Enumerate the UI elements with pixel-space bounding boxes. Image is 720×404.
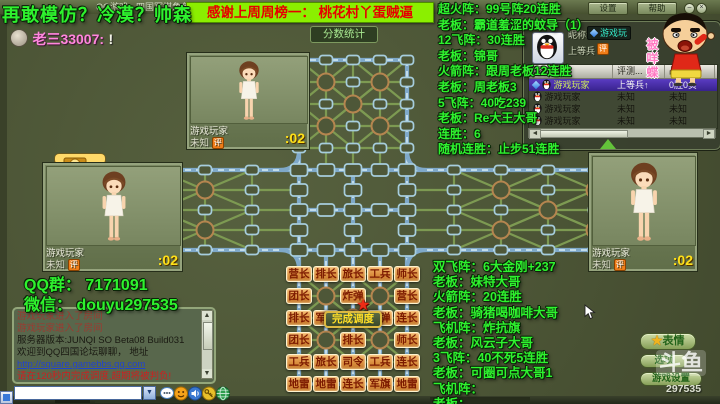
piece-tile[interactable]: 连长: [394, 354, 420, 370]
star-marker: ★: [356, 295, 370, 315]
board-node[interactable]: [372, 244, 389, 256]
board-node[interactable]: [318, 164, 335, 176]
piece-tile[interactable]: 团长: [286, 332, 312, 348]
rate-badge[interactable]: 评: [597, 43, 609, 55]
camp-circle: [372, 118, 389, 135]
camp-circle: [372, 332, 389, 349]
chat-text: !: [109, 31, 114, 47]
board-node[interactable]: [291, 244, 308, 256]
chat-author: 老三33007:: [32, 31, 104, 47]
promo-line: 老板：妹特大哥: [433, 275, 558, 290]
board-node[interactable]: [401, 78, 414, 87]
promo-line: 老板：: [433, 397, 558, 404]
board-node[interactable]: [347, 56, 360, 65]
promo-line: 老板：骑猪喝咖啡大哥: [433, 306, 558, 321]
piece-tile[interactable]: 工兵: [286, 354, 312, 370]
promo-line: 3飞阵：40不死5连胜: [433, 351, 558, 366]
board-node[interactable]: [320, 56, 333, 65]
player-rank: 未知: [592, 260, 611, 271]
camp-circle: [318, 118, 335, 135]
board-node[interactable]: [199, 246, 212, 255]
mouse-cursor: [584, 304, 596, 320]
camp-circle: [372, 74, 389, 91]
board-node[interactable]: [246, 186, 259, 195]
board-node[interactable]: [291, 184, 308, 196]
board-node[interactable]: [374, 56, 387, 65]
collapse-arrow[interactable]: [600, 139, 616, 149]
chat-message-row: 服务器版本:JUNQI SO Beta08 Build031: [17, 335, 199, 347]
board-node[interactable]: [291, 164, 308, 176]
wechat-text: 微信： douyu297535: [24, 291, 178, 315]
scroll-up-arrow[interactable]: ▲: [202, 311, 212, 320]
chat-avatar-icon: [10, 29, 28, 47]
turn-timer: :02: [285, 130, 305, 146]
board-node[interactable]: [246, 246, 259, 255]
scroll-thumb[interactable]: [203, 322, 213, 350]
board-node[interactable]: [401, 144, 414, 153]
board-node[interactable]: [347, 122, 360, 131]
board-node[interactable]: [448, 246, 461, 255]
board-node[interactable]: [399, 224, 416, 236]
avatar-left: [46, 166, 181, 246]
piece-tile[interactable]: 地雷: [394, 376, 420, 392]
board-node[interactable]: [495, 206, 508, 215]
promo-line: 老板：霸道羞涩的蚊导（1）: [438, 18, 589, 34]
piece-tile[interactable]: 团长: [286, 288, 312, 304]
chat-message-row: 请在120秒内完成调度,超期将被判负!: [17, 371, 199, 383]
player-rank: 未知: [190, 138, 209, 149]
board-node[interactable]: [542, 186, 555, 195]
turn-timer: :02: [158, 252, 178, 268]
turn-timer: :02: [673, 252, 693, 268]
scroll-right-arrow[interactable]: ►: [703, 129, 715, 139]
board-node[interactable]: [345, 244, 362, 256]
board-node[interactable]: [399, 164, 416, 176]
piece-tile[interactable]: 工兵: [367, 354, 393, 370]
smiley-icon[interactable]: [175, 387, 188, 400]
emote-button[interactable]: ★表情: [640, 333, 696, 350]
camp-circle: [493, 222, 510, 239]
promo-line: 连胜：6: [438, 127, 589, 143]
promo-line: 随机连胜：止步51连胜: [438, 142, 589, 158]
weekly-top-banner: 感谢上周周榜一： 桃花村丫蛋贼逼: [186, 2, 434, 23]
camp-circle: [318, 332, 335, 349]
piece-tile[interactable]: 旅长: [340, 266, 366, 282]
key-icon[interactable]: [203, 387, 216, 400]
piece-tile[interactable]: 排长: [286, 310, 312, 326]
board-node[interactable]: [401, 100, 414, 109]
piece-tile[interactable]: 营长: [394, 288, 420, 304]
camp-circle: [318, 288, 335, 305]
camp-circle: [318, 74, 335, 91]
score-stats-button[interactable]: 分数统计: [310, 26, 378, 43]
chat-message-row: http://square.gamebbs.qq.com: [17, 359, 199, 371]
douyu-watermark-logo: 斗鱼: [656, 350, 706, 376]
board-node[interactable]: [345, 204, 362, 216]
board-node[interactable]: [374, 100, 387, 109]
room-number: 297535: [666, 383, 701, 395]
piece-tile[interactable]: 工兵: [367, 266, 393, 282]
chat-bubble-icon[interactable]: [161, 388, 174, 399]
board-node[interactable]: [291, 204, 308, 216]
speaker-icon[interactable]: [189, 387, 202, 400]
camp-circle: [197, 182, 214, 199]
board-node[interactable]: [399, 184, 416, 196]
piece-tile[interactable]: 军旗: [367, 376, 393, 392]
board-node[interactable]: [345, 224, 362, 236]
board-node[interactable]: [401, 122, 414, 131]
promo-line: 老板：Re大王大哥: [438, 111, 589, 127]
piece-tile[interactable]: 师长: [394, 266, 420, 282]
piece-tile[interactable]: 地雷: [313, 376, 339, 392]
board-node[interactable]: [199, 166, 212, 175]
piece-tile[interactable]: 师长: [394, 332, 420, 348]
promo-line: 老板：可圈可点大哥1: [433, 366, 558, 381]
promo-line: 老板：周老板3: [438, 80, 589, 96]
board-node[interactable]: [372, 204, 389, 216]
board-node[interactable]: [372, 164, 389, 176]
chat-input-bar: ▼: [12, 386, 216, 402]
board-node[interactable]: [318, 204, 335, 216]
board-node[interactable]: [495, 246, 508, 255]
board-node[interactable]: [542, 166, 555, 175]
chat-message-row: 欢迎到QQ四国论坛聊聊， 地址: [17, 347, 199, 359]
board-node[interactable]: [542, 246, 555, 255]
player-card-top: 游戏玩家 未知 评 :02: [186, 52, 310, 150]
player-card-right: 游戏玩家 未知 评 :02: [588, 152, 698, 272]
board-node[interactable]: [347, 78, 360, 87]
promo-line: 5飞阵：40吃239: [438, 96, 589, 112]
camp-circle: [493, 182, 510, 199]
gem-icon: [590, 29, 598, 37]
overlay-warning-text: 再敢模仿？冷漠？帅森: [2, 1, 192, 27]
chat-input[interactable]: [14, 386, 142, 400]
board-node[interactable]: [448, 166, 461, 175]
board-node[interactable]: [399, 204, 416, 216]
board-node[interactable]: [542, 226, 555, 235]
player-card-left: 游戏玩家 未知 评 :02: [42, 162, 183, 272]
board-node[interactable]: [318, 244, 335, 256]
piece-tile[interactable]: 营长: [286, 266, 312, 282]
chat-messages: 游戏玩家进入了房间游戏玩家进入了房间服务器版本:JUNQI SO Beta08 …: [17, 311, 199, 383]
piece-tile[interactable]: 司令: [340, 354, 366, 370]
board-node[interactable]: [374, 144, 387, 153]
rate-badge[interactable]: 评: [68, 259, 80, 271]
board-node[interactable]: [347, 144, 360, 153]
camp-circle: [197, 222, 214, 239]
rate-badge[interactable]: 评: [212, 137, 224, 149]
board-node[interactable]: [401, 56, 414, 65]
finish-deploy-button[interactable]: 完成调度: [324, 311, 382, 328]
rate-badge[interactable]: 评: [614, 259, 626, 271]
chat-message-row: 游戏玩家进入了房间: [17, 323, 199, 335]
promo-line: 12飞阵：30连胜: [438, 33, 589, 49]
board-node[interactable]: [291, 224, 308, 236]
room-chat-panel: 游戏玩家进入了房间游戏玩家进入了房间服务器版本:JUNQI SO Beta08 …: [12, 307, 216, 384]
star-icon: ★: [652, 335, 663, 347]
promo-line: 飞机阵：炸抗旗: [433, 321, 558, 336]
camp-circle: [540, 202, 557, 219]
board-node[interactable]: [199, 206, 212, 215]
board-node[interactable]: [320, 100, 333, 109]
piece-tile[interactable]: 排长: [340, 332, 366, 348]
piece-tile[interactable]: 旅长: [313, 354, 339, 370]
game-window: QQ游戏 - 四国军棋角色版 公测版 Beta08 Build031 设置 帮助…: [0, 0, 720, 404]
promo-line: 老板：锦哥: [438, 49, 589, 65]
top-promo-list: 超火阵：99号阵20连胜老板：霸道羞涩的蚊导（1）12飞阵：30连胜老板：锦哥火…: [438, 2, 589, 158]
chat-vscrollbar[interactable]: ▲ ▼: [201, 310, 213, 379]
promo-line: 双飞阵：6大金刚+237: [433, 260, 558, 275]
promo-line: 火箭阵：20连胜: [433, 290, 558, 305]
promo-line: 火箭阵：跟周老板12连胜: [438, 64, 589, 80]
camp-circle: [345, 96, 362, 113]
board-node[interactable]: [399, 244, 416, 256]
board-node[interactable]: [246, 166, 259, 175]
piece-tile[interactable]: 连长: [340, 376, 366, 392]
sticker-text: 被咩蝶: [644, 38, 661, 80]
piece-tile[interactable]: 连长: [394, 310, 420, 326]
piece-tile[interactable]: 地雷: [286, 376, 312, 392]
globe-icon[interactable]: [217, 387, 230, 400]
piece-tile[interactable]: 排长: [313, 266, 339, 282]
board-node[interactable]: [345, 164, 362, 176]
bottom-promo-list: 双飞阵：6大金刚+237老板：妹特大哥火箭阵：20连胜老板：骑猪喝咖啡大哥飞机阵…: [433, 260, 558, 404]
avatar-top: [190, 56, 308, 124]
taskbar-mini-icon[interactable]: [0, 391, 13, 404]
scroll-down-arrow[interactable]: ▼: [202, 369, 212, 378]
board-node[interactable]: [246, 206, 259, 215]
board-node[interactable]: [448, 186, 461, 195]
board-node[interactable]: [448, 226, 461, 235]
avatar-right: [592, 156, 696, 246]
chat-message: 老三33007: !: [10, 29, 113, 49]
board-node[interactable]: [246, 226, 259, 235]
board-node[interactable]: [448, 206, 461, 215]
nickname-chip: 游戏玩: [587, 26, 631, 40]
board-node[interactable]: [495, 166, 508, 175]
camp-circle: [372, 288, 389, 305]
board-node[interactable]: [320, 144, 333, 153]
player-rank: 未知: [46, 260, 65, 271]
promo-line: 超火阵：99号阵20连胜: [438, 2, 589, 18]
chat-dropdown-button[interactable]: ▼: [143, 386, 156, 400]
promo-line: 老板：风云子大哥: [433, 336, 558, 351]
board-node[interactable]: [345, 184, 362, 196]
promo-line: 飞机阵：: [433, 382, 558, 397]
